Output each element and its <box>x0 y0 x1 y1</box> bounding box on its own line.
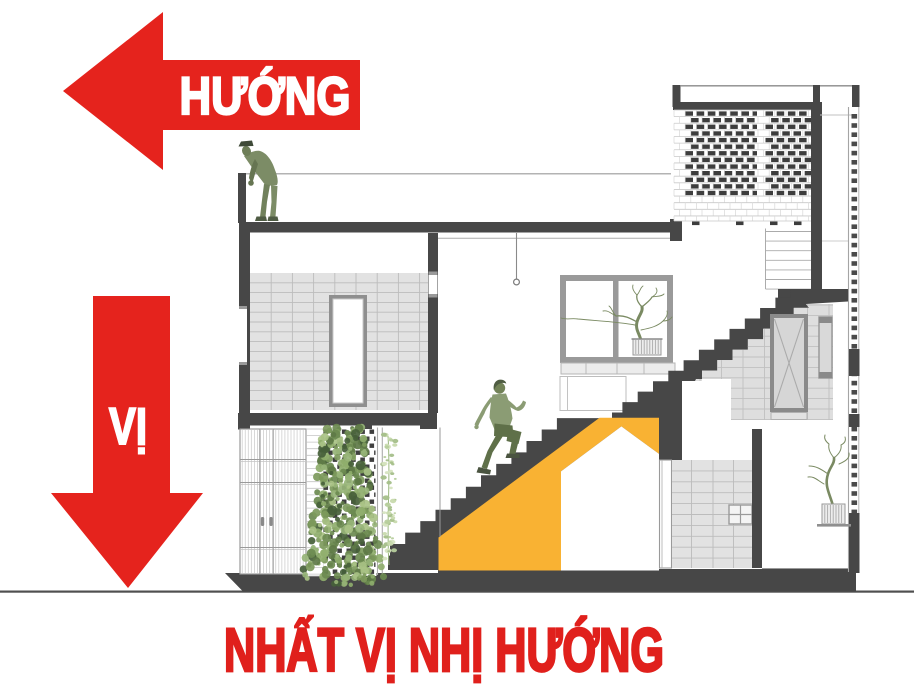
svg-text:NHẤT VỊ NHỊ HƯỚNG: NHẤT VỊ NHỊ HƯỚNG <box>224 616 664 684</box>
svg-text:HƯỚNG: HƯỚNG <box>180 66 351 126</box>
svg-text:VỊ: VỊ <box>109 398 147 456</box>
